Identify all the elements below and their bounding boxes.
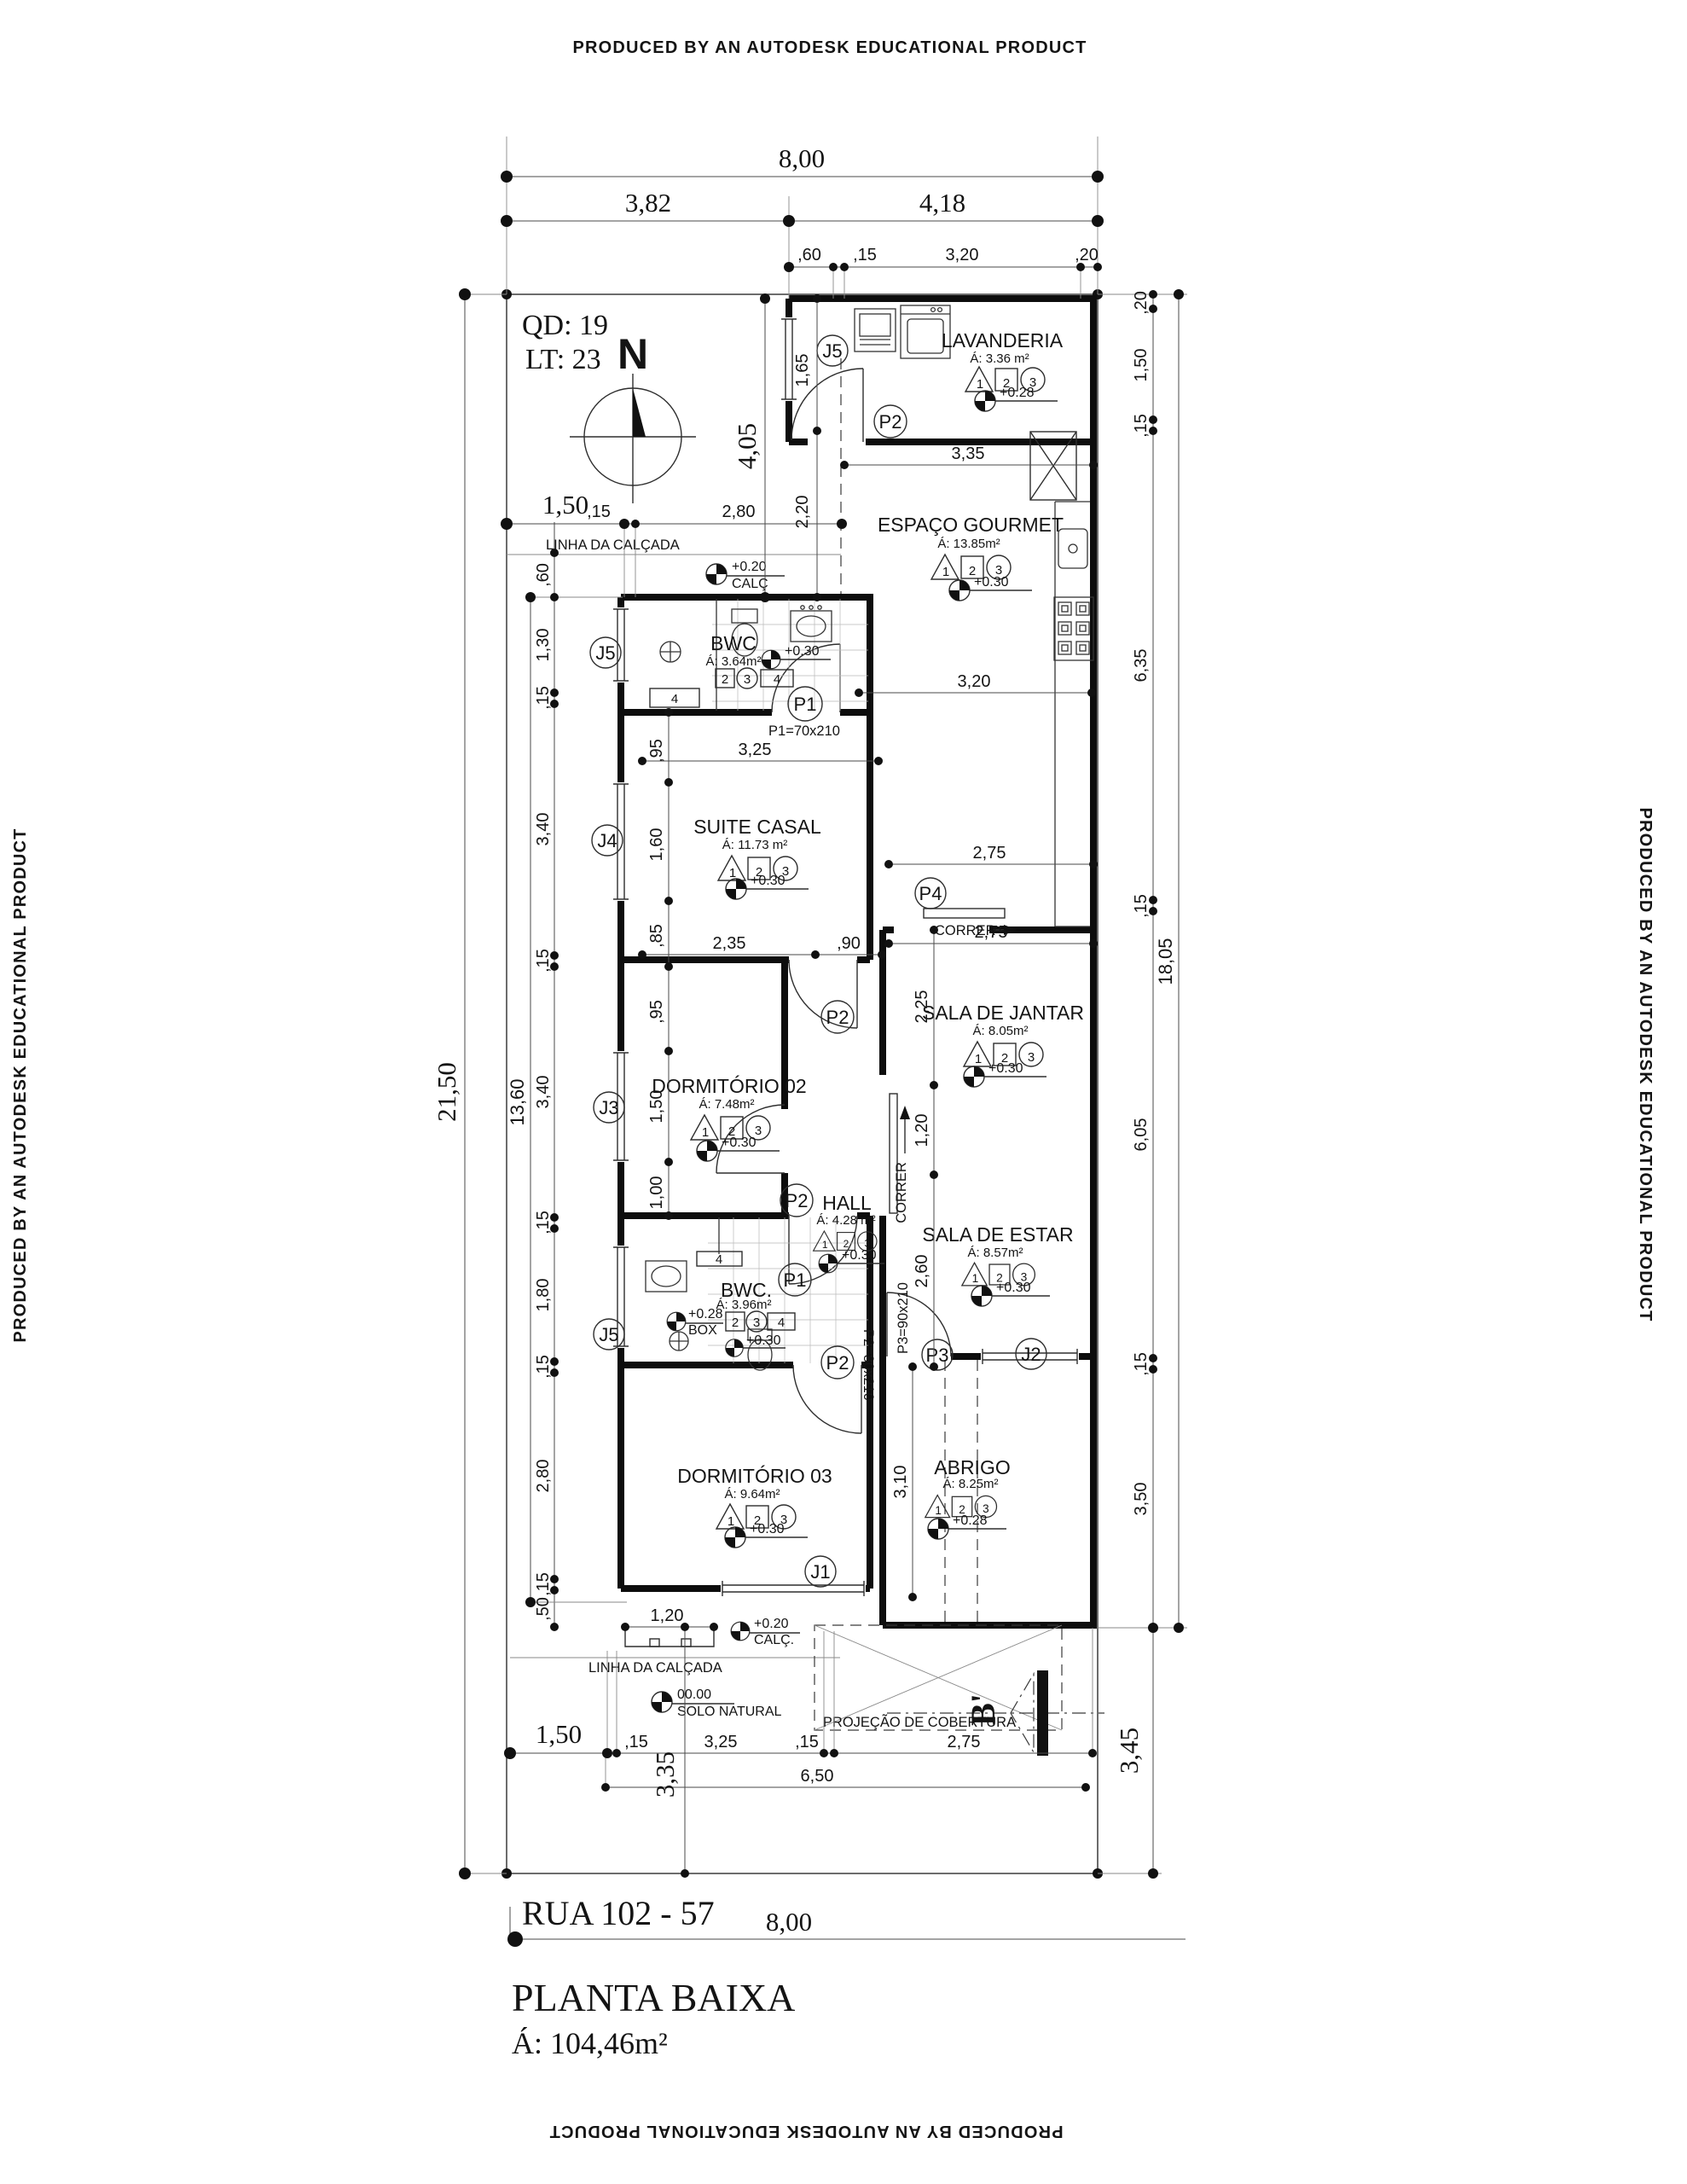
room-area: Á: 9.64m² <box>724 1487 780 1501</box>
floor-plan-sheet: PRODUCED BY AN AUTODESK EDUCATIONAL PROD… <box>0 0 1687 2184</box>
svg-text:1: 1 <box>942 565 949 579</box>
svg-text:3,10: 3,10 <box>891 1466 910 1499</box>
svg-text:CALÇ: CALÇ <box>732 577 768 591</box>
svg-text:1,60: 1,60 <box>647 828 666 862</box>
tag-j1: J1 <box>810 1561 830 1583</box>
projecao-label: PROJEÇÃO DE COBERTURA <box>823 1713 1016 1730</box>
svg-text:1,20: 1,20 <box>651 1606 684 1625</box>
laundry-fixtures <box>855 305 950 358</box>
room-dorm03: DORMITÓRIO 03 Á: 9.64m² 1 2 3 +0.30 <box>677 1465 832 1548</box>
svg-text:1: 1 <box>822 1239 828 1251</box>
tag-j5: J5 <box>822 340 842 362</box>
svg-text:,95: ,95 <box>647 1000 666 1024</box>
room-abrigo: ABRIGO Á: 8.25m² 1 2 3 +0.28 <box>925 1456 1011 1539</box>
tag-j3: J3 <box>599 1097 618 1118</box>
room-area: Á: 4.28 m² <box>816 1213 875 1228</box>
svg-text:,95: ,95 <box>647 739 666 763</box>
svg-text:18,05: 18,05 <box>1155 938 1176 985</box>
svg-text:2,35: 2,35 <box>713 934 746 953</box>
svg-text:2: 2 <box>732 1316 739 1330</box>
room-name: DORMITÓRIO 02 <box>652 1075 806 1097</box>
svg-text:+0.30: +0.30 <box>974 575 1009 590</box>
svg-text:,15: ,15 <box>534 1211 553 1234</box>
svg-text:3,82: 3,82 <box>625 188 671 218</box>
svg-text:+0.28: +0.28 <box>688 1307 723 1321</box>
svg-text:3,40: 3,40 <box>534 813 553 846</box>
svg-text:,15: ,15 <box>1132 894 1151 918</box>
svg-text:4: 4 <box>671 692 678 706</box>
floor-plan-canvas: PRODUCED BY AN AUTODESK EDUCATIONAL PROD… <box>0 0 1687 2184</box>
note-p3: P3=90x210 <box>896 1282 911 1354</box>
note-p2: P2=80x210 <box>861 1329 876 1401</box>
gourmet-counter <box>1054 502 1093 926</box>
svg-text:4,18: 4,18 <box>919 188 965 218</box>
svg-text:+0.30: +0.30 <box>751 874 786 888</box>
svg-text:3,20: 3,20 <box>958 672 991 691</box>
tag-j2: J2 <box>1021 1344 1041 1365</box>
solo-natural-marker-icon: 00.00 SOLO NATURAL <box>652 1687 782 1719</box>
room-area: Á: 13.85m² <box>937 537 1000 551</box>
svg-text:2: 2 <box>722 672 728 687</box>
level-marker-icon: +0.30 <box>971 1281 1050 1306</box>
svg-text:2,75: 2,75 <box>975 923 1008 942</box>
svg-text:,60: ,60 <box>797 246 821 264</box>
svg-text:3,50: 3,50 <box>1132 1483 1151 1516</box>
title-block: PLANTA BAIXA Á: 104,46m² <box>512 1976 795 2060</box>
svg-text:6,05: 6,05 <box>1132 1118 1151 1152</box>
svg-text:1: 1 <box>702 1125 709 1140</box>
svg-text:2,20: 2,20 <box>793 496 812 529</box>
room-jantar: SALA DE JANTAR Á: 8.05m² 1 2 3 +0.30 <box>922 1002 1084 1087</box>
svg-text:3,25: 3,25 <box>739 741 772 759</box>
room-area: Á: 8.05m² <box>972 1024 1028 1038</box>
svg-text:,15: ,15 <box>624 1733 648 1751</box>
room-name: DORMITÓRIO 03 <box>677 1465 832 1487</box>
svg-text:2,75: 2,75 <box>973 844 1006 863</box>
room-area: Á: 3.36 m² <box>970 351 1029 366</box>
section-marker-b: B' <box>887 1670 1104 1756</box>
quadra-label: QD: 19 <box>522 310 608 341</box>
level-marker-icon: +0.28 <box>975 386 1058 411</box>
svg-text:,15: ,15 <box>534 686 553 710</box>
svg-text:+0.30: +0.30 <box>842 1248 877 1263</box>
room-hall: HALL Á: 4.28 m² 1 2 3 +0.30 <box>814 1192 884 1273</box>
svg-text:8,00: 8,00 <box>779 143 825 173</box>
svg-text:+0.30: +0.30 <box>746 1333 781 1348</box>
svg-text:,15: ,15 <box>587 502 611 521</box>
svg-text:CORRER: CORRER <box>894 1162 909 1223</box>
svg-text:1: 1 <box>977 377 983 392</box>
box-level-marker-icon: +0.28 BOX <box>667 1307 723 1338</box>
room-area: Á: 8.57m² <box>967 1246 1023 1260</box>
tag-p3: P3 <box>926 1345 949 1366</box>
svg-text:1,30: 1,30 <box>534 629 553 662</box>
svg-text:2,25: 2,25 <box>913 990 931 1024</box>
svg-text:,15: ,15 <box>1132 1352 1151 1376</box>
svg-text:+0.30: +0.30 <box>996 1281 1031 1295</box>
svg-text:SOLO NATURAL: SOLO NATURAL <box>677 1705 782 1719</box>
room-gourmet: ESPAÇO GOURMET Á: 13.85m² 1 2 3 +0.30 <box>878 514 1064 601</box>
svg-text:13,60: 13,60 <box>507 1078 528 1125</box>
linha-calcada-label: LINHA DA CALÇADA <box>546 537 680 553</box>
svg-text:3: 3 <box>1028 1050 1035 1065</box>
svg-text:1,00: 1,00 <box>647 1176 666 1210</box>
svg-text:,15: ,15 <box>534 949 553 973</box>
tag-p4: P4 <box>919 883 942 904</box>
svg-text:21,50: 21,50 <box>432 1062 461 1122</box>
dims-top: 8,00 3,82 4,18 ,60 ,15 3,20 ,20 <box>501 136 1104 299</box>
room-name: ABRIGO <box>934 1456 1010 1478</box>
svg-text:2,60: 2,60 <box>913 1255 931 1288</box>
svg-text:BOX: BOX <box>688 1323 717 1338</box>
sidewalk-annotations: LINHA DA CALÇADA +0.20 CALÇ LINHA DA CAL… <box>546 537 1016 1730</box>
svg-text:+0.20: +0.20 <box>754 1617 789 1631</box>
svg-text:3,20: 3,20 <box>946 246 979 264</box>
room-area: Á: 8.25m² <box>942 1477 998 1491</box>
drawing-title: PLANTA BAIXA <box>512 1976 795 2019</box>
svg-text:3,25: 3,25 <box>704 1733 738 1751</box>
svg-text:+0.30: +0.30 <box>750 1522 785 1536</box>
banner-left: PRODUCED BY AN AUTODESK EDUCATIONAL PROD… <box>11 828 30 1342</box>
svg-text:1,50: 1,50 <box>647 1090 666 1124</box>
svg-text:+0.30: +0.30 <box>988 1061 1023 1076</box>
room-name: SALA DE JANTAR <box>922 1002 1084 1024</box>
room-area: Á: 3.96m² <box>716 1298 771 1312</box>
banner-top: PRODUCED BY AN AUTODESK EDUCATIONAL PROD… <box>572 38 1087 57</box>
tag-p2: P2 <box>786 1190 809 1211</box>
svg-text:4: 4 <box>778 1316 785 1330</box>
banner-right: PRODUCED BY AN AUTODESK EDUCATIONAL PROD… <box>1636 807 1655 1321</box>
svg-text:N: N <box>617 330 648 378</box>
tag-p2: P2 <box>879 411 902 433</box>
tag-p1: P1 <box>784 1269 807 1291</box>
entry-steps <box>625 1627 714 1647</box>
svg-text:CALÇ.: CALÇ. <box>754 1633 794 1647</box>
svg-text:3,35: 3,35 <box>650 1751 680 1798</box>
svg-text:,15: ,15 <box>795 1733 819 1751</box>
svg-text:,15: ,15 <box>853 246 877 264</box>
svg-text:2,80: 2,80 <box>534 1460 553 1493</box>
svg-text:,15: ,15 <box>534 1572 553 1596</box>
street-width: 8,00 <box>766 1907 812 1937</box>
svg-text:,50: ,50 <box>534 1597 553 1621</box>
linha-calcada-label: LINHA DA CALÇADA <box>588 1660 722 1676</box>
svg-text:+0.20: +0.20 <box>732 560 767 574</box>
street-name: RUA 102 - 57 <box>522 1894 715 1932</box>
room-area: Á: 11.73 m² <box>722 838 787 852</box>
svg-text:1: 1 <box>728 1514 734 1529</box>
svg-text:,15: ,15 <box>534 1355 553 1379</box>
svg-text:4: 4 <box>716 1252 722 1267</box>
calc-level-marker-icon: +0.20 CALÇ. <box>731 1617 800 1647</box>
svg-text:1: 1 <box>975 1052 982 1066</box>
room-name: ESPAÇO GOURMET <box>878 514 1064 536</box>
svg-text:1,50: 1,50 <box>536 1719 582 1749</box>
svg-text:1,65: 1,65 <box>793 354 812 387</box>
tag-j5: J5 <box>595 642 615 664</box>
drawing-area: Á: 104,46m² <box>512 2026 668 2060</box>
svg-text:+0.30: +0.30 <box>785 644 820 659</box>
svg-text:+0.28: +0.28 <box>953 1513 988 1528</box>
svg-text:2,80: 2,80 <box>722 502 756 521</box>
svg-text:,60: ,60 <box>534 563 553 587</box>
banner-bottom: PRODUCED BY AN AUTODESK EDUCATIONAL PROD… <box>548 2122 1063 2140</box>
svg-text:1,80: 1,80 <box>534 1279 553 1312</box>
room-area: Á: 7.48m² <box>699 1097 754 1112</box>
level-marker-icon: +0.30 <box>762 644 831 669</box>
level-marker-icon: +0.30 <box>726 1333 786 1356</box>
tag-p2: P2 <box>826 1352 849 1374</box>
room-name: SUITE CASAL <box>693 816 821 838</box>
svg-text:4: 4 <box>774 672 780 687</box>
svg-text:1: 1 <box>972 1272 979 1285</box>
svg-text:3: 3 <box>744 672 751 687</box>
room-name: HALL <box>822 1192 872 1214</box>
room-estar: SALA DE ESTAR Á: 8.57m² 1 2 3 +0.30 <box>922 1223 1073 1306</box>
svg-text:,20: ,20 <box>1075 246 1099 264</box>
svg-text:,20: ,20 <box>1132 291 1151 315</box>
room-dorm02: DORMITÓRIO 02 Á: 7.48m² 1 2 3 +0.30 <box>652 1075 806 1161</box>
svg-text:+0.28: +0.28 <box>1000 386 1035 400</box>
svg-text:,90: ,90 <box>837 934 861 953</box>
room-area: Á: 3.64m² <box>705 654 761 669</box>
sliding-door-p4 <box>924 909 1005 918</box>
svg-text:1,50: 1,50 <box>1132 349 1151 382</box>
svg-text:+0.30: +0.30 <box>722 1136 757 1150</box>
svg-text:4,05: 4,05 <box>732 423 762 469</box>
svg-text:,85: ,85 <box>647 924 666 948</box>
tag-j5: J5 <box>599 1324 618 1345</box>
svg-text:2,75: 2,75 <box>948 1733 981 1751</box>
svg-text:3,40: 3,40 <box>534 1076 553 1109</box>
level-marker-icon: +0.30 <box>819 1248 884 1273</box>
svg-text:6,35: 6,35 <box>1132 649 1151 682</box>
tag-j4: J4 <box>597 830 617 851</box>
svg-text:,15: ,15 <box>1132 414 1151 438</box>
svg-text:3,45: 3,45 <box>1114 1728 1144 1774</box>
svg-text:1: 1 <box>935 1504 942 1517</box>
tag-p2: P2 <box>826 1007 849 1028</box>
svg-text:1,50: 1,50 <box>542 490 588 520</box>
lote-label: LT: 23 <box>525 344 601 375</box>
svg-text:00.00: 00.00 <box>677 1687 711 1702</box>
room-lavanderia: LAVANDERIA Á: 3.36 m² 1 2 3 +0.28 <box>942 329 1064 411</box>
room-name: SALA DE ESTAR <box>922 1223 1073 1246</box>
note-p1: P1=70x210 <box>768 723 840 739</box>
level-marker-icon: +0.30 <box>725 1522 808 1548</box>
svg-text:3,35: 3,35 <box>952 444 985 463</box>
svg-text:3: 3 <box>753 1316 760 1330</box>
svg-text:1,20: 1,20 <box>913 1114 931 1147</box>
svg-text:6,50: 6,50 <box>801 1767 834 1786</box>
street-line: RUA 102 - 57 8,00 <box>507 1894 1186 1947</box>
tag-p1: P1 <box>794 694 817 715</box>
level-marker-icon: +0.30 <box>726 874 809 899</box>
room-name: BWC <box>710 632 757 654</box>
calc-level-marker-icon: +0.20 CALÇ <box>706 560 785 591</box>
bwc1-fixtures <box>660 599 868 711</box>
roof-projection <box>815 1360 1062 1730</box>
room-suite: SUITE CASAL Á: 11.73 m² 1 2 3 +0.30 <box>693 816 821 899</box>
correr-vertical: CORRER <box>894 1106 910 1223</box>
room-name: LAVANDERIA <box>942 329 1064 351</box>
